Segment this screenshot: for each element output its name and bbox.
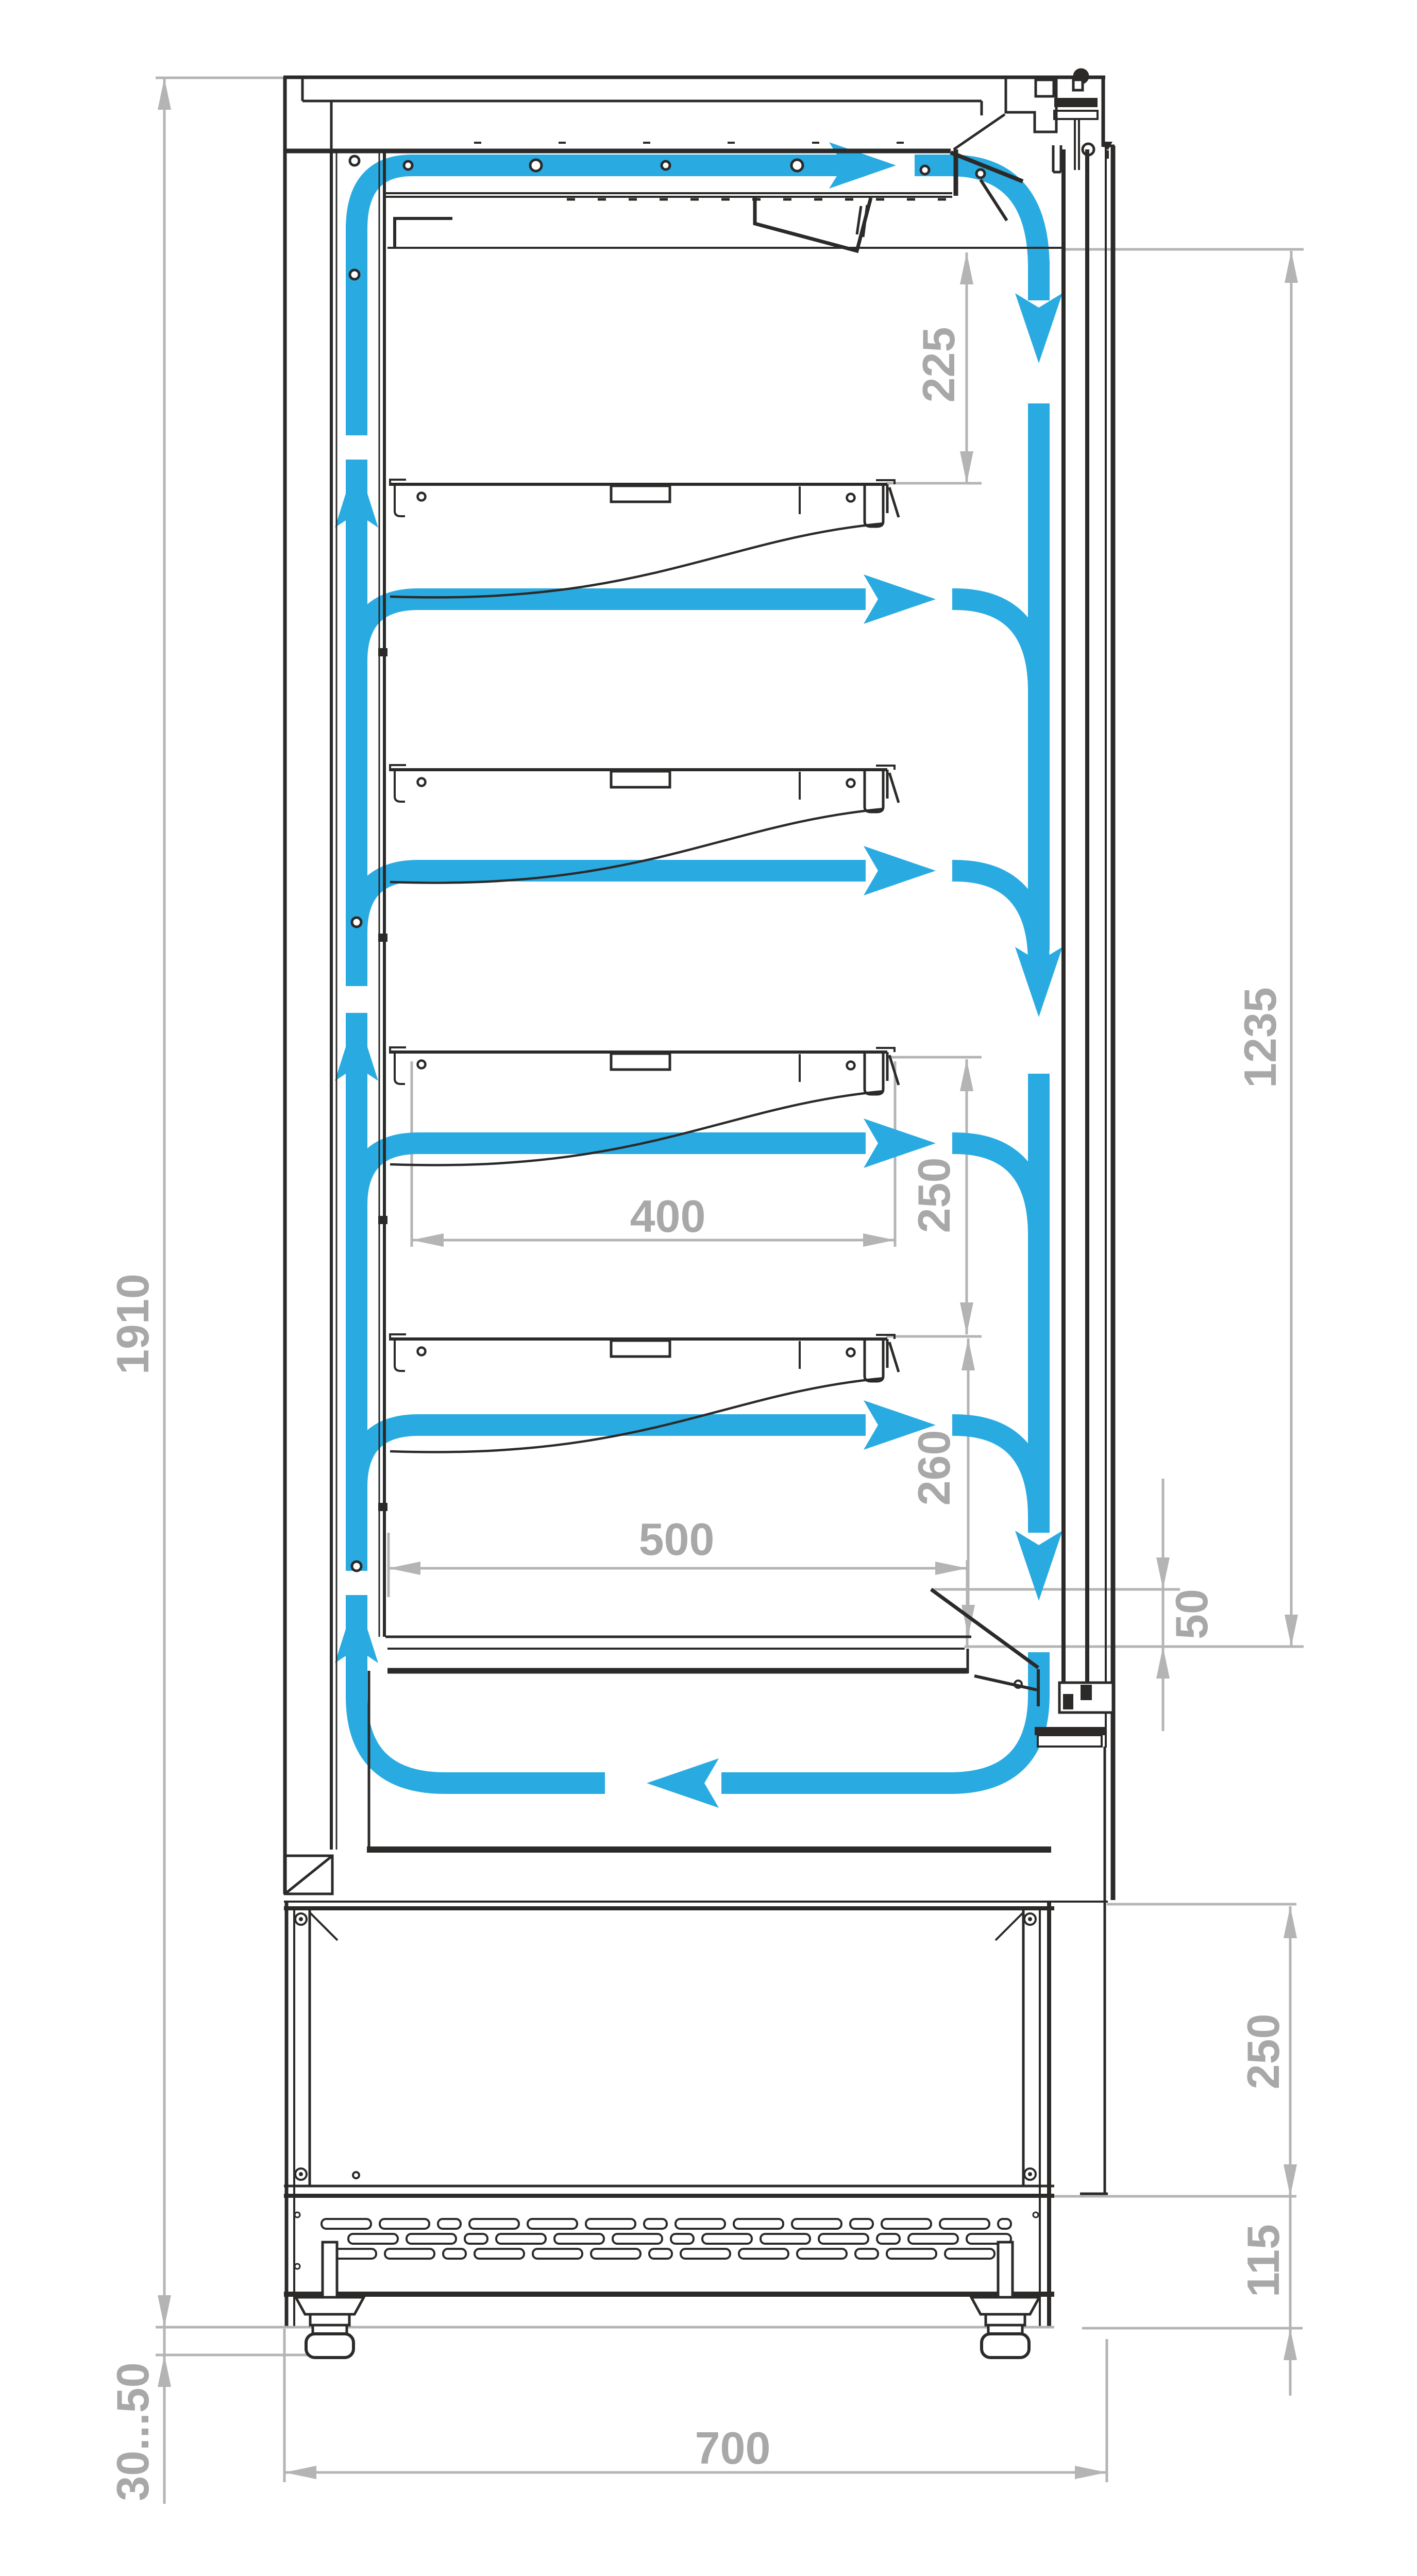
svg-text:250: 250: [908, 1158, 959, 1233]
svg-text:50: 50: [1166, 1589, 1217, 1639]
svg-text:700: 700: [695, 2422, 771, 2473]
svg-text:1910: 1910: [107, 1274, 158, 1375]
svg-text:1235: 1235: [1235, 987, 1286, 1088]
svg-text:260: 260: [908, 1430, 959, 1506]
svg-text:500: 500: [639, 1514, 715, 1565]
svg-text:250: 250: [1238, 2014, 1289, 2090]
svg-text:225: 225: [913, 327, 964, 403]
svg-text:400: 400: [630, 1191, 706, 1242]
svg-text:30...50: 30...50: [107, 2362, 158, 2501]
svg-text:115: 115: [1238, 2224, 1289, 2297]
